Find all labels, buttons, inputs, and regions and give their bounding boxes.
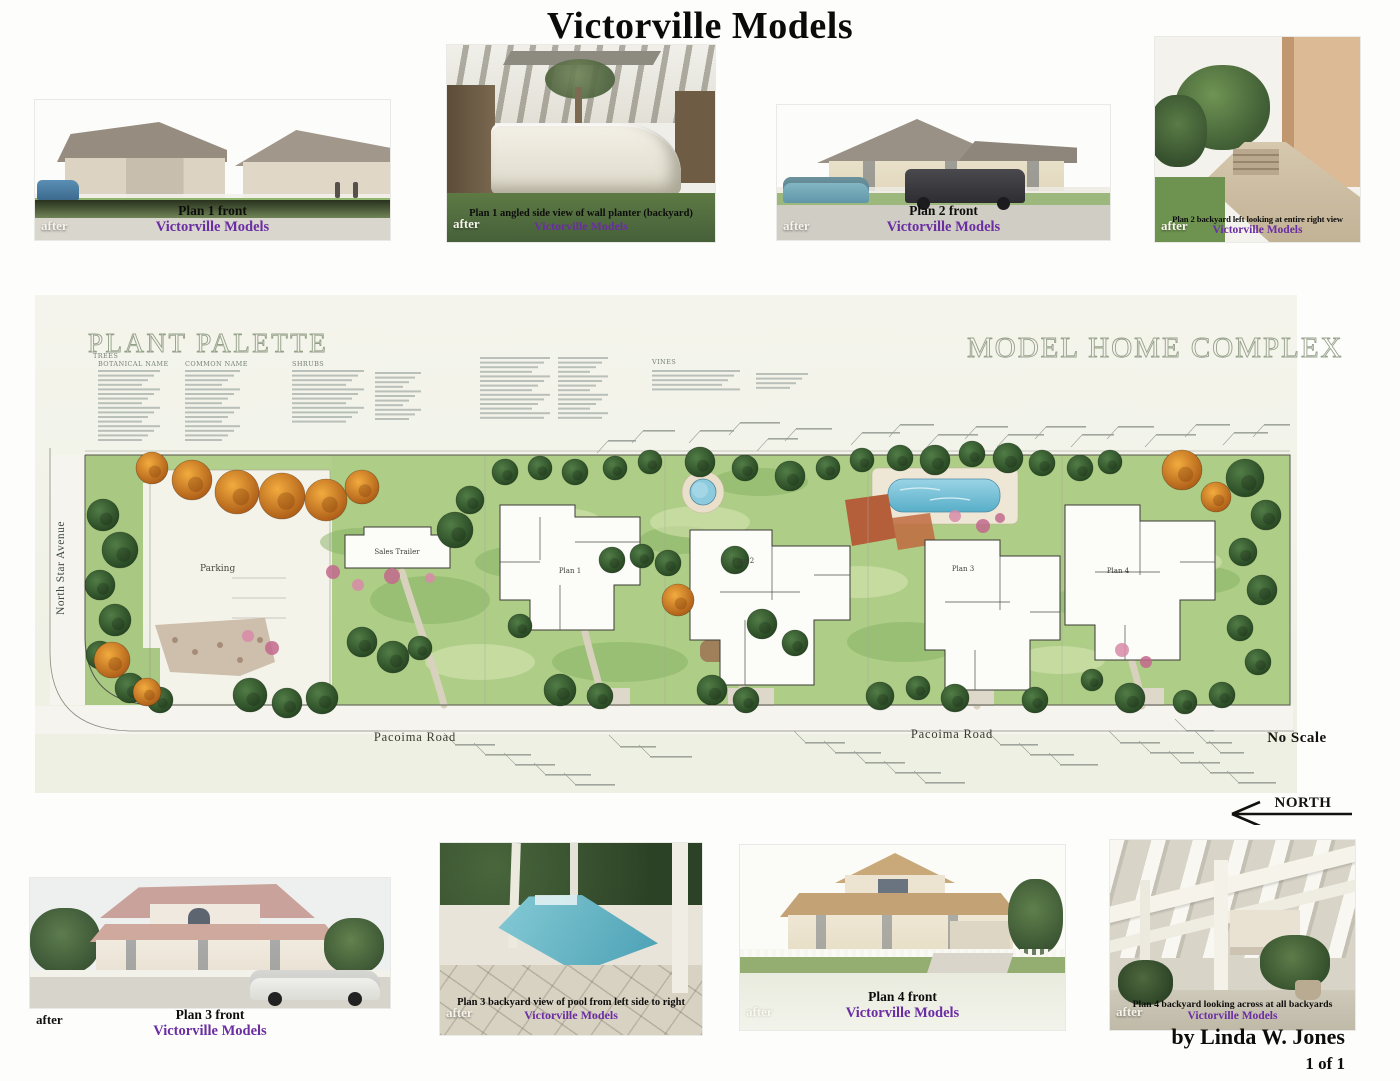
photo-plan2-backyard: Plan 2 backyard left looking at entire r…: [1155, 37, 1360, 242]
photo-brand: Victorville Models: [440, 1008, 702, 1023]
fence-shape: [740, 949, 1065, 957]
page-number: 1 of 1: [1305, 1054, 1345, 1074]
presentation-board: Victorville Models Plan 1 front Victorvi…: [0, 0, 1400, 1081]
person-figure: [353, 182, 358, 198]
tree-canopy-shape: [30, 908, 100, 974]
photo-after-tag: after: [41, 218, 68, 234]
photo-brand: Victorville Models: [35, 219, 390, 236]
photo-plan3-pool: Plan 3 backyard view of pool from left s…: [440, 843, 702, 1035]
photo-caption: Plan 1 front: [35, 203, 390, 219]
pergola-post-shape: [1214, 860, 1228, 1000]
wheel-shape: [268, 992, 282, 1006]
tree-canopy-shape: [1008, 879, 1063, 955]
photo-caption: Plan 2 front: [777, 203, 1110, 219]
window-shape: [878, 879, 908, 895]
photo-after-tag: after: [746, 1004, 773, 1020]
photo-after-tag: after: [36, 1012, 63, 1028]
fence-shape: [447, 85, 495, 205]
palette-col-common: COMMON NAME: [185, 360, 248, 368]
plan1-label: Plan 1: [559, 567, 581, 575]
car-shape: [37, 180, 79, 200]
photo-plan3-front-image: [30, 878, 390, 1008]
house-wall-shape: [96, 940, 336, 970]
site-plan-drawing: PLANT PALETTE TREES BOTANICAL NAME COMMO…: [35, 295, 1365, 825]
waterfall-shape: [535, 895, 577, 905]
garage-shape: [950, 921, 1010, 949]
photo-caption: Plan 4 front: [740, 989, 1065, 1005]
palette-group-shrubs: SHRUBS: [292, 360, 324, 368]
photo-brand: Victorville Models: [447, 219, 715, 234]
photo-plan3-front: Plan 3 front Victorville Models after: [30, 878, 390, 1042]
photo-plan1-front: Plan 1 front Victorville Models after: [35, 100, 390, 240]
wall-planter-shape: [491, 123, 681, 195]
photo-after-tag: after: [1161, 218, 1188, 234]
photo-plan2-front: Plan 2 front Victorville Models after: [777, 105, 1110, 240]
no-scale-label: No Scale: [1267, 730, 1326, 746]
fence-shape: [675, 91, 715, 183]
photo-plan4-backyard: Plan 4 backyard looking across at all ba…: [1110, 840, 1355, 1030]
photo-brand: Victorville Models: [30, 1023, 390, 1040]
photo-caption: Plan 1 angled side view of wall planter …: [447, 208, 715, 219]
complex-title: MODEL HOME COMPLEX: [967, 332, 1343, 364]
planter-pot-shape: [1295, 980, 1321, 1000]
pergola-post-shape: [672, 843, 688, 993]
person-figure: [335, 182, 340, 198]
wheel-shape: [348, 992, 362, 1006]
pool-shape: [468, 895, 658, 973]
photo-after-tag: after: [1116, 1004, 1143, 1020]
road-label-pacoima-right: Pacoima Road: [911, 727, 993, 741]
photo-after-tag: after: [783, 218, 810, 234]
north-label: NORTH: [1275, 795, 1332, 811]
palette-group-vines: VINES: [651, 358, 676, 366]
plan3-label: Plan 3: [952, 565, 974, 573]
tree-canopy-shape: [1155, 95, 1207, 167]
photo-caption: Plan 3 front: [30, 1007, 390, 1023]
tree-canopy-shape: [324, 918, 384, 974]
car-shape: [783, 177, 869, 203]
house-roof-shape: [780, 893, 1020, 917]
photo-plan2-backyard-image: [1155, 37, 1360, 242]
house-roof-shape: [957, 141, 1077, 163]
driveway-shape: [926, 953, 1013, 975]
palette-col-botanical: BOTANICAL NAME: [98, 360, 169, 368]
palette-title: PLANT PALETTE: [88, 328, 328, 358]
plan2-label: Plan 2: [732, 557, 754, 565]
author-credit: by Linda W. Jones: [1171, 1024, 1345, 1050]
house-roof-shape: [235, 130, 390, 166]
photo-after-tag: after: [453, 216, 480, 232]
photo-caption: Plan 3 backyard view of pool from left s…: [440, 997, 702, 1008]
parking-label: Parking: [200, 564, 235, 574]
lawn-shape: [740, 957, 1065, 973]
garden-steps-shape: [1233, 149, 1279, 175]
photo-brand: Victorville Models: [740, 1005, 1065, 1022]
photo-plan1-backyard: Plan 1 angled side view of wall planter …: [447, 45, 715, 242]
photo-brand: Victorville Models: [1110, 1010, 1355, 1022]
photo-plan4-front: Plan 4 front Victorville Models after: [740, 845, 1065, 1030]
road-label-pacoima-left: Pacoima Road: [374, 730, 456, 744]
palette-group-trees: TREES: [93, 352, 118, 360]
photo-brand: Victorville Models: [777, 219, 1110, 236]
street-label-north-star: North Star Avenue: [55, 521, 67, 615]
photo-caption: Plan 4 backyard looking across at all ba…: [1110, 999, 1355, 1010]
sales-trailer-label: Sales Trailer: [374, 548, 420, 556]
photo-after-tag: after: [446, 1005, 473, 1021]
plan4-label: Plan 4: [1107, 567, 1130, 575]
house-roof-shape: [57, 122, 227, 162]
